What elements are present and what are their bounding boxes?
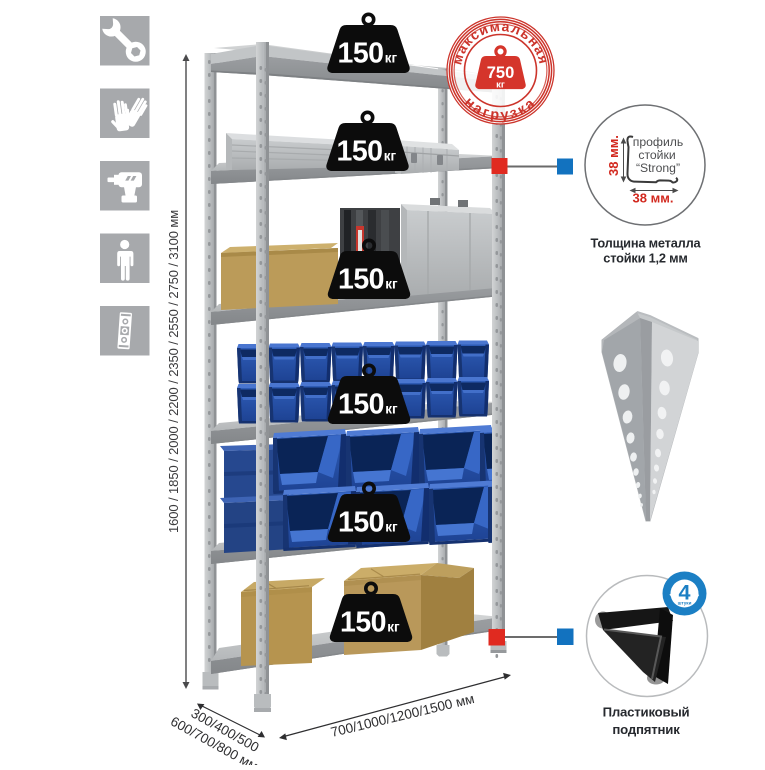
- svg-text:1600 / 1850 / 2000 / 2200 / 23: 1600 / 1850 / 2000 / 2200 / 2350 / 2550 …: [166, 210, 181, 533]
- svg-text:штуки: штуки: [678, 601, 692, 606]
- svg-text:стойки 1,2 мм: стойки 1,2 мм: [603, 251, 687, 266]
- svg-text:38 мм.: 38 мм.: [633, 191, 674, 206]
- svg-text:подпятник: подпятник: [612, 722, 680, 737]
- svg-text:“Strong”: “Strong”: [636, 161, 680, 175]
- svg-text:кг: кг: [496, 80, 505, 91]
- svg-text:38 мм.: 38 мм.: [606, 135, 621, 176]
- svg-text:профиль: профиль: [633, 135, 683, 149]
- svg-text:Пластиковый: Пластиковый: [603, 705, 690, 720]
- svg-text:Толщина металла: Толщина металла: [591, 236, 702, 251]
- svg-text:стойки: стойки: [638, 148, 675, 162]
